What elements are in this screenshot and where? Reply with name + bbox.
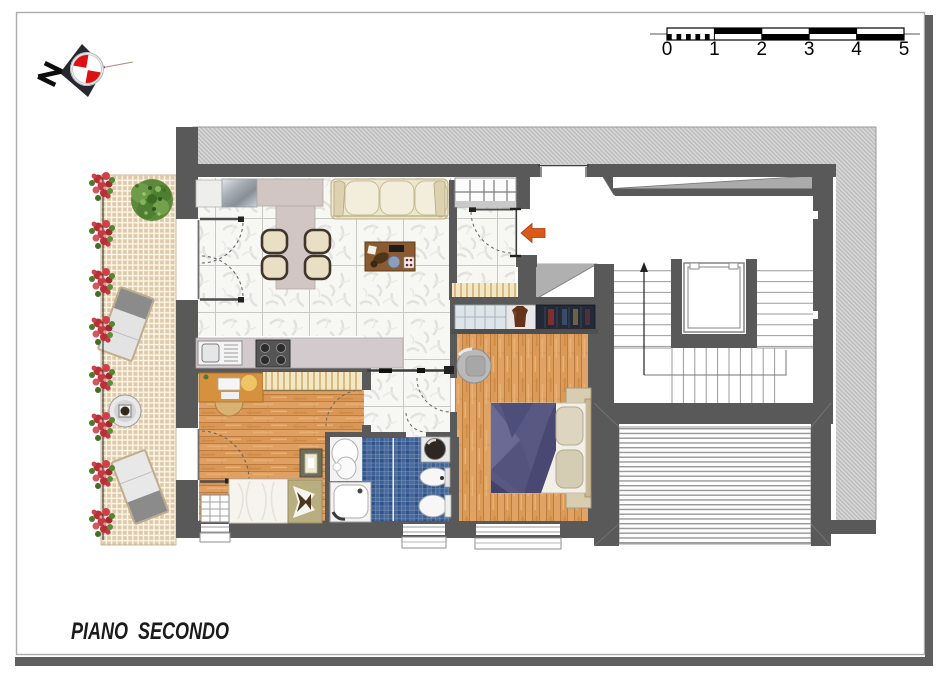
svg-text:4: 4 (851, 39, 862, 60)
svg-text:1: 1 (709, 39, 720, 60)
svg-text:0: 0 (662, 39, 673, 60)
svg-text:2: 2 (757, 39, 768, 60)
svg-text:5: 5 (899, 39, 910, 60)
svg-text:3: 3 (804, 39, 815, 60)
svg-text:PIANO SECONDO: PIANO SECONDO (71, 618, 229, 645)
